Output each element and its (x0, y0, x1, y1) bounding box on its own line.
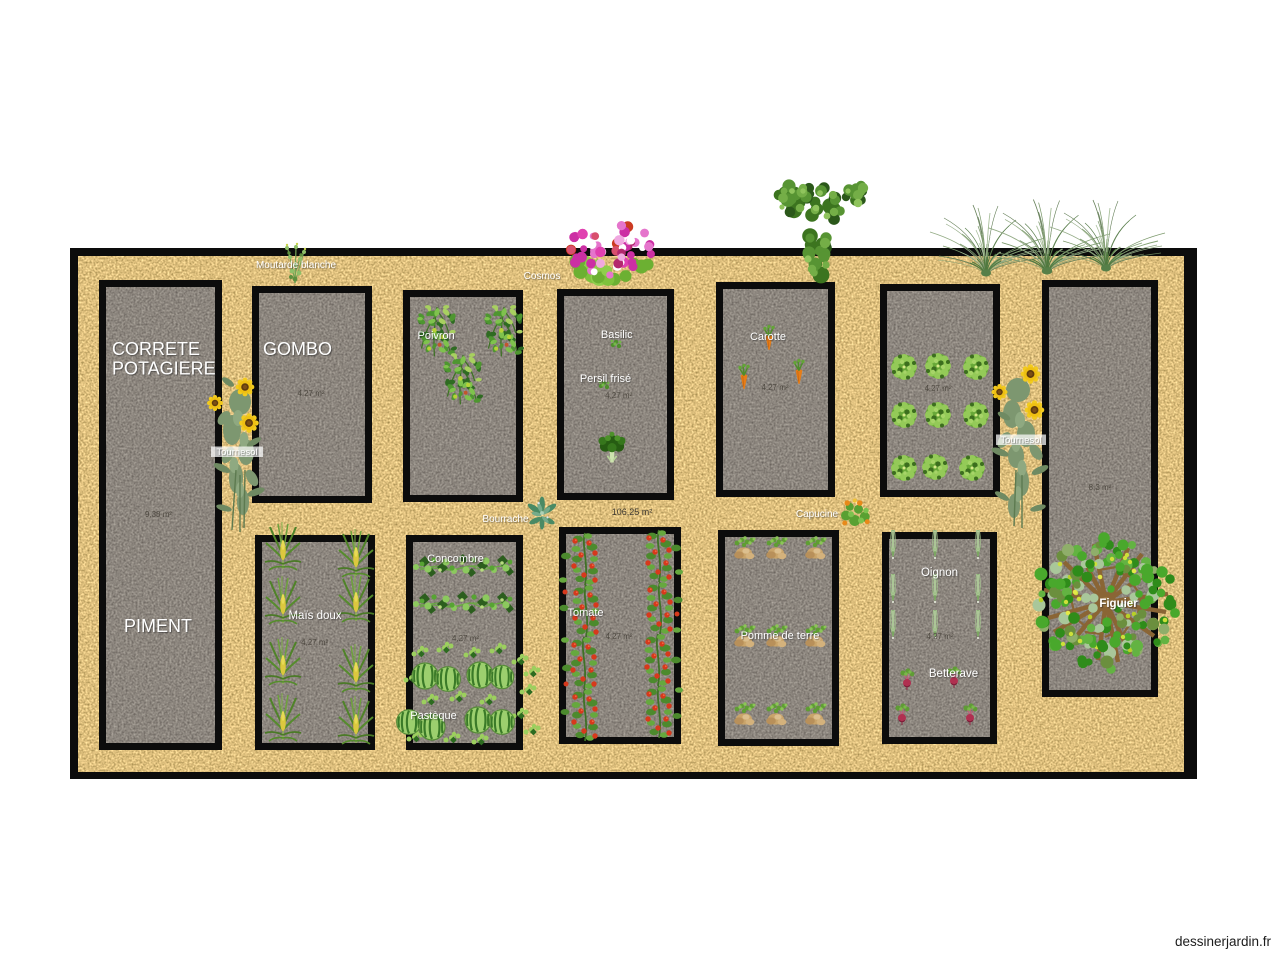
svg-text:Oignon: Oignon (921, 567, 958, 579)
svg-text:GOMBO: GOMBO (263, 339, 332, 359)
svg-text:4,27 m²: 4,27 m² (926, 632, 953, 641)
svg-text:4,27 m²: 4,27 m² (924, 384, 951, 393)
svg-text:CORRETE: CORRETE (112, 339, 200, 359)
svg-text:Bourrache: Bourrache (482, 514, 529, 525)
svg-text:Cosmos: Cosmos (524, 271, 561, 282)
svg-text:Tournesol: Tournesol (216, 447, 257, 458)
svg-text:4,27 m²: 4,27 m² (297, 389, 324, 398)
svg-text:POTAGIERE: POTAGIERE (112, 359, 216, 379)
svg-text:106,25 m²: 106,25 m² (612, 507, 653, 517)
svg-text:4,27 m²: 4,27 m² (761, 383, 788, 392)
svg-text:Maïs doux: Maïs doux (288, 610, 341, 622)
svg-text:dessinerjardin.fr: dessinerjardin.fr (1175, 934, 1272, 949)
svg-text:4,27 m²: 4,27 m² (605, 391, 632, 400)
svg-text:8,3 m²: 8,3 m² (1089, 483, 1112, 492)
svg-text:Basilic: Basilic (601, 329, 633, 341)
svg-text:4,27 m²: 4,27 m² (605, 632, 632, 641)
svg-text:Tomate: Tomate (567, 607, 603, 619)
svg-text:4,27 m²: 4,27 m² (301, 638, 328, 647)
svg-text:Pastèque: Pastèque (410, 710, 456, 722)
svg-text:Carotte: Carotte (750, 331, 786, 343)
svg-text:Tournesol: Tournesol (1000, 435, 1041, 446)
svg-text:4,27 m²: 4,27 m² (452, 634, 479, 643)
svg-text:Betterave: Betterave (929, 668, 978, 680)
svg-text:PIMENT: PIMENT (124, 616, 192, 636)
svg-text:Poivron: Poivron (418, 330, 455, 342)
svg-text:Concombre: Concombre (427, 553, 484, 565)
svg-text:Capucine: Capucine (796, 509, 839, 520)
svg-text:9,38 m²: 9,38 m² (145, 510, 172, 519)
svg-text:Figuier: Figuier (1099, 598, 1138, 610)
svg-text:Moutarde blanche: Moutarde blanche (256, 260, 336, 271)
svg-text:Pomme de terre: Pomme de terre (741, 630, 820, 642)
svg-text:Persil frisé: Persil frisé (580, 373, 631, 385)
